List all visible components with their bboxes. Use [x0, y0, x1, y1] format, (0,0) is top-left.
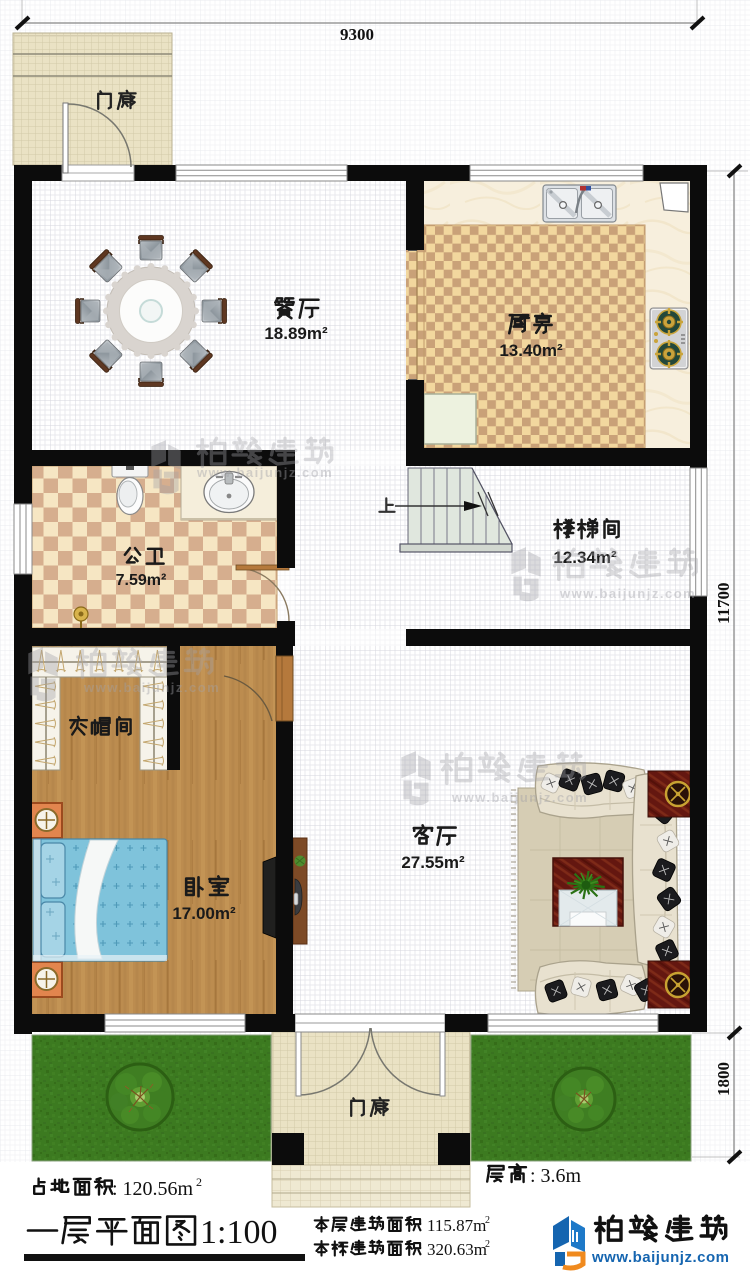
svg-text:: 3.6m: : 3.6m [530, 1165, 582, 1187]
svg-text:www.baijunjz.com: www.baijunjz.com [451, 790, 588, 805]
svg-text:2: 2 [196, 1175, 202, 1189]
svg-text:7.59m²: 7.59m² [116, 572, 167, 589]
svg-text:27.55m²: 27.55m² [401, 853, 465, 872]
svg-text:1800: 1800 [714, 1062, 733, 1096]
svg-text:2: 2 [485, 1215, 490, 1226]
svg-text:9300: 9300 [340, 25, 374, 44]
svg-text:www.baijunjz.com: www.baijunjz.com [559, 586, 696, 601]
svg-text:11700: 11700 [714, 582, 733, 624]
svg-text:13.40m²: 13.40m² [499, 341, 563, 360]
svg-text:: 320.63m: : 320.63m [418, 1240, 487, 1259]
svg-text:2: 2 [485, 1239, 490, 1250]
svg-text:17.00m²: 17.00m² [172, 904, 236, 923]
svg-text:1:100: 1:100 [200, 1214, 277, 1251]
svg-text:18.89m²: 18.89m² [264, 324, 328, 343]
svg-text:www.baijunjz.com: www.baijunjz.com [83, 680, 220, 695]
svg-text:: 120.56m: : 120.56m [112, 1178, 194, 1200]
svg-text:: 115.87m: : 115.87m [418, 1216, 486, 1235]
svg-text:www.baijunjz.com: www.baijunjz.com [591, 1249, 729, 1266]
svg-text:www.baijunjz.com: www.baijunjz.com [196, 465, 333, 480]
